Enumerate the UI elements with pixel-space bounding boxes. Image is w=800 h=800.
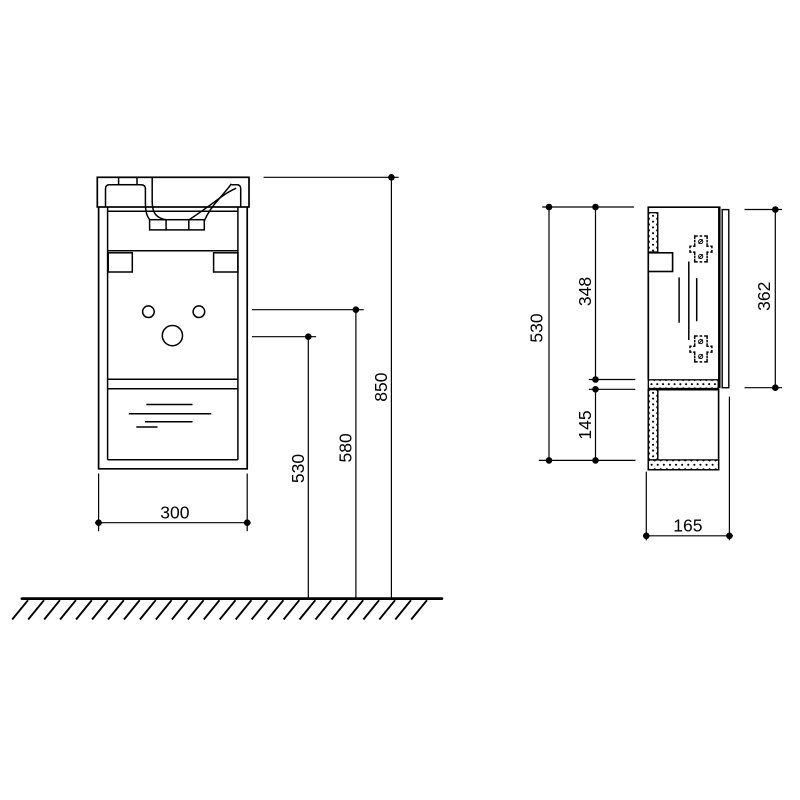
svg-text:850: 850 bbox=[371, 372, 391, 401]
svg-text:300: 300 bbox=[160, 503, 189, 523]
svg-text:145: 145 bbox=[575, 410, 595, 439]
svg-text:530: 530 bbox=[526, 313, 546, 342]
svg-text:580: 580 bbox=[336, 433, 356, 462]
svg-text:165: 165 bbox=[673, 515, 702, 535]
svg-text:530: 530 bbox=[288, 454, 308, 483]
svg-text:348: 348 bbox=[575, 277, 595, 306]
svg-text:362: 362 bbox=[754, 282, 774, 311]
